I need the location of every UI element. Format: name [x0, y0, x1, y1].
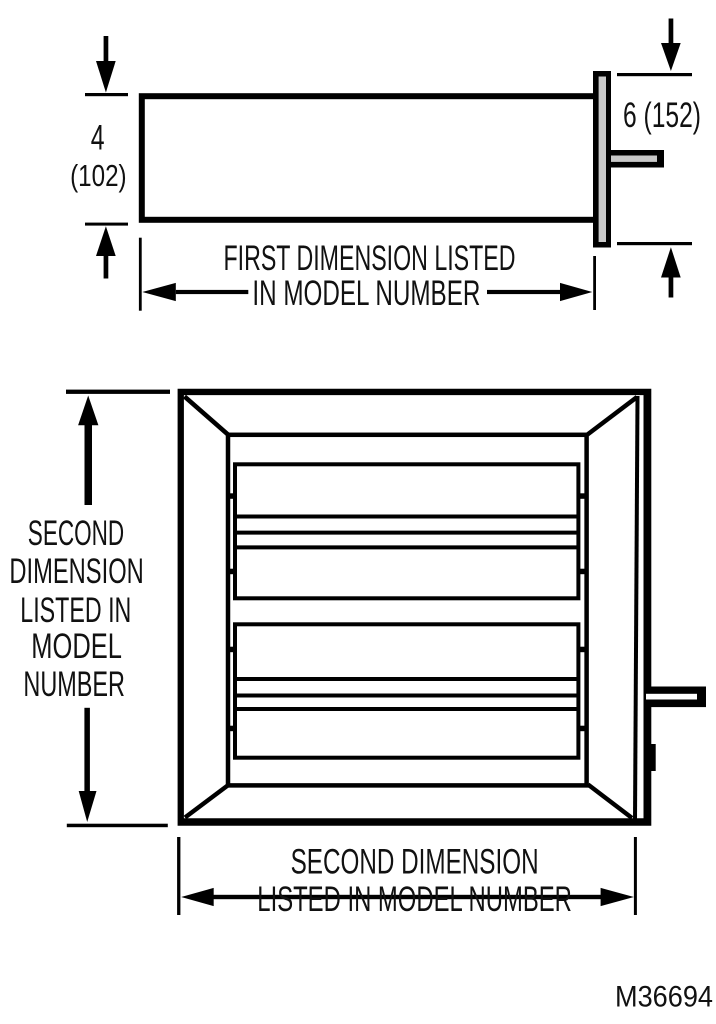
svg-text:NUMBER: NUMBER: [23, 665, 125, 704]
svg-text:LISTED IN: LISTED IN: [20, 591, 131, 630]
svg-text:MODEL: MODEL: [31, 627, 122, 666]
svg-text:FIRST DIMENSION LISTED: FIRST DIMENSION LISTED: [224, 239, 516, 278]
svg-text:6 (152): 6 (152): [623, 96, 701, 135]
svg-text:LISTED IN MODEL NUMBER: LISTED IN MODEL NUMBER: [257, 880, 572, 919]
svg-text:SECOND DIMENSION: SECOND DIMENSION: [291, 843, 539, 882]
svg-text:(102): (102): [70, 158, 127, 193]
svg-text:DIMENSION: DIMENSION: [9, 552, 143, 591]
svg-text:SECOND: SECOND: [28, 514, 124, 553]
svg-text:M36694: M36694: [615, 981, 713, 1014]
svg-text:4: 4: [91, 118, 105, 157]
svg-text:IN MODEL NUMBER: IN MODEL NUMBER: [252, 274, 480, 313]
